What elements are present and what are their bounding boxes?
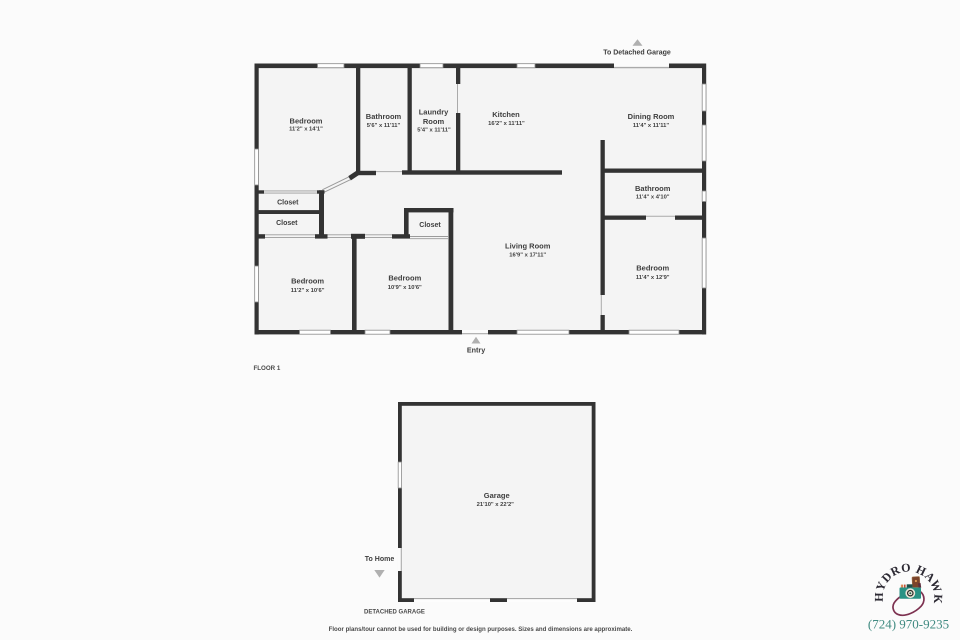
svg-text:To Detached Garage: To Detached Garage — [603, 50, 671, 57]
svg-text:Entry: Entry — [467, 346, 485, 355]
svg-text:Closet: Closet — [276, 220, 298, 227]
svg-text:Room: Room — [423, 117, 445, 126]
svg-text:5'6" x 11'11": 5'6" x 11'11" — [367, 123, 401, 129]
svg-text:Closet: Closet — [419, 222, 441, 229]
svg-text:21'10" x 22'2": 21'10" x 22'2" — [477, 502, 515, 508]
svg-text:11'2" x 10'6": 11'2" x 10'6" — [291, 288, 325, 294]
svg-text:Dining Room: Dining Room — [628, 112, 675, 121]
svg-text:Kitchen: Kitchen — [492, 110, 520, 119]
svg-text:DETACHED GARAGE: DETACHED GARAGE — [364, 610, 425, 616]
svg-text:Floor plans/tour cannot be use: Floor plans/tour cannot be used for buil… — [329, 626, 633, 633]
svg-text:16'2" x 11'11": 16'2" x 11'11" — [488, 121, 525, 127]
svg-text:Living Room: Living Room — [505, 242, 551, 251]
svg-text:11'4" x 11'11": 11'4" x 11'11" — [633, 123, 670, 129]
svg-text:5'4" x 11'11": 5'4" x 11'11" — [417, 128, 451, 134]
svg-text:Bedroom: Bedroom — [290, 116, 323, 125]
svg-text:Closet: Closet — [277, 200, 299, 207]
svg-text:FLOOR 1: FLOOR 1 — [254, 365, 281, 372]
svg-text:(724) 970-9235: (724) 970-9235 — [868, 617, 949, 632]
svg-text:Garage: Garage — [484, 491, 510, 500]
svg-text:To Home: To Home — [365, 556, 395, 563]
svg-text:Bathroom: Bathroom — [366, 112, 402, 121]
svg-text:11'4" x 4'10": 11'4" x 4'10" — [636, 195, 670, 201]
svg-text:11'2" x 14'1": 11'2" x 14'1" — [289, 127, 323, 133]
svg-text:Bedroom: Bedroom — [291, 277, 324, 286]
svg-text:Laundry: Laundry — [419, 108, 449, 117]
svg-text:Bedroom: Bedroom — [388, 274, 421, 283]
svg-text:Bedroom: Bedroom — [636, 264, 669, 273]
svg-text:Bathroom: Bathroom — [635, 184, 671, 193]
svg-text:10'9" x 10'6": 10'9" x 10'6" — [388, 285, 422, 291]
svg-text:11'4" x 12'9": 11'4" x 12'9" — [636, 275, 670, 281]
svg-text:16'9" x 17'11": 16'9" x 17'11" — [509, 252, 546, 258]
